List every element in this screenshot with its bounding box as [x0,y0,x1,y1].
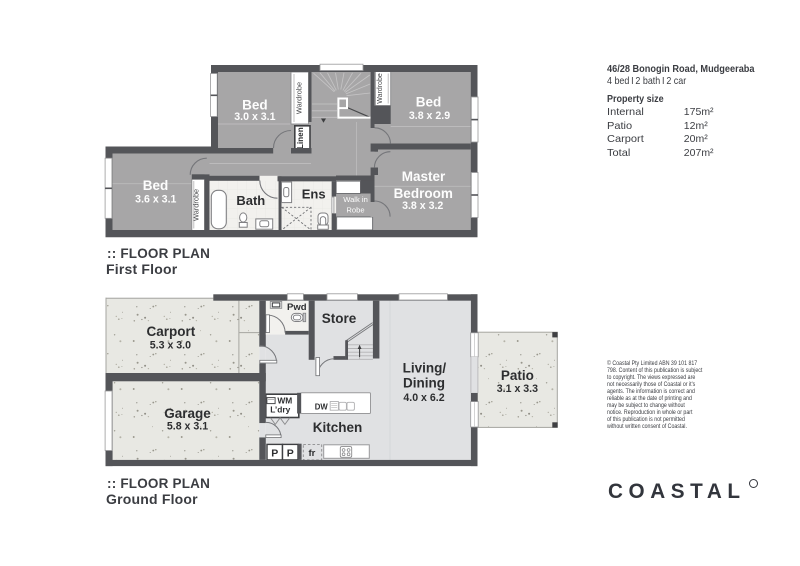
svg-text:Master: Master [402,169,446,184]
svg-text:Patio: Patio [501,368,534,383]
svg-text:3.8 x 3.2: 3.8 x 3.2 [402,200,443,212]
svg-text:Bed: Bed [143,178,169,193]
svg-text:4.0 x 6.2: 4.0 x 6.2 [403,392,444,404]
svg-text:Wardrobe: Wardrobe [377,73,384,104]
svg-text:5.8 x 3.1: 5.8 x 3.1 [167,420,208,432]
svg-text:Bath: Bath [236,193,265,208]
svg-text:Ens: Ens [302,187,326,202]
svg-text:Linen: Linen [296,127,305,149]
svg-text:Kitchen: Kitchen [313,420,363,435]
svg-text:fr: fr [308,448,315,459]
svg-text:Dining: Dining [403,376,445,391]
svg-text:Wardrobe: Wardrobe [192,189,201,221]
svg-text:Walk in: Walk in [343,195,368,204]
svg-text:Pwd: Pwd [287,302,307,313]
svg-text:L’dry: L’dry [270,405,290,415]
svg-text:3.6 x 3.1: 3.6 x 3.1 [135,194,176,206]
svg-text:Bedroom: Bedroom [394,186,453,201]
svg-text:Bed: Bed [416,95,442,110]
svg-text:Wardrobe: Wardrobe [295,82,304,114]
svg-text:Carport: Carport [147,324,196,339]
svg-text:Living/: Living/ [403,361,447,376]
svg-text:Robe: Robe [346,206,364,215]
svg-text:3.8 x 2.9: 3.8 x 2.9 [409,110,450,122]
svg-text:3.1 x 3.3: 3.1 x 3.3 [497,383,538,395]
svg-text:P: P [271,447,278,459]
svg-text:Garage: Garage [164,406,211,421]
svg-text:P: P [287,447,294,459]
svg-text:Store: Store [322,311,357,326]
svg-text:3.0 x 3.1: 3.0 x 3.1 [234,111,275,123]
svg-text:DW: DW [315,403,329,412]
svg-text:5.3 x 3.0: 5.3 x 3.0 [150,339,191,351]
